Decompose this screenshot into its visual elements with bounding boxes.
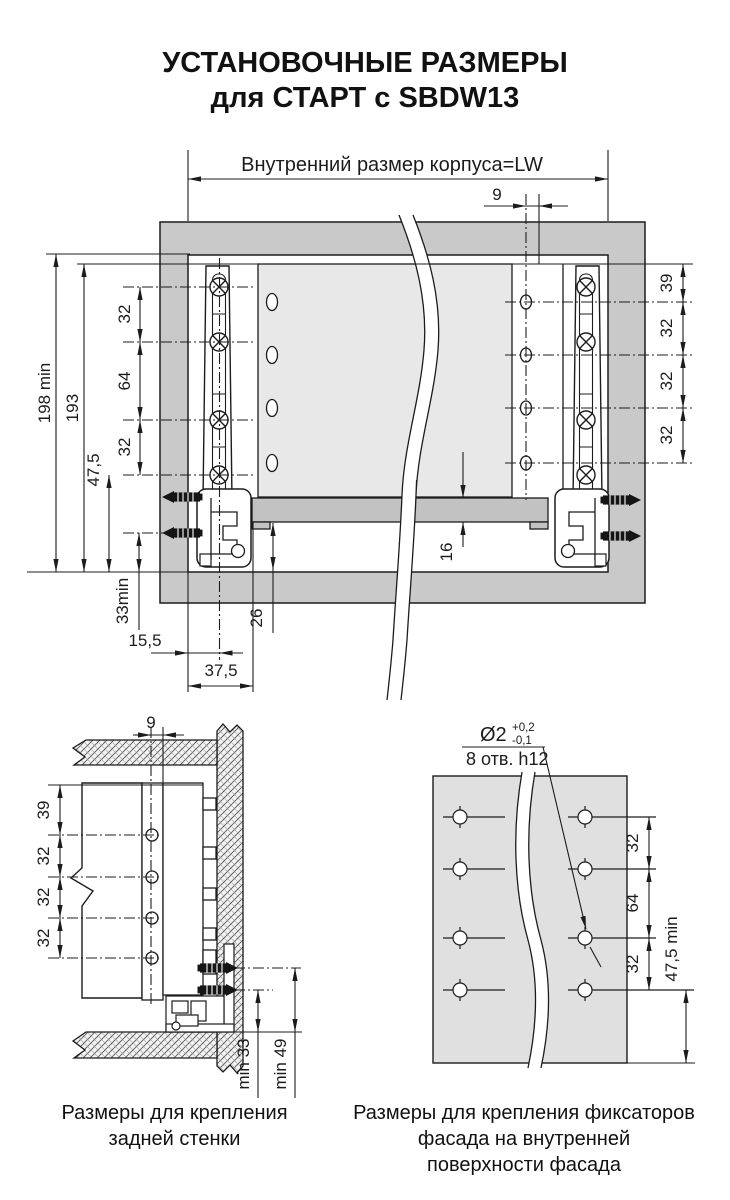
drawer-back-panel bbox=[258, 264, 512, 497]
facade-caption-line2: фасада на внутренней bbox=[330, 1126, 718, 1152]
dim-32-left-b: 32 bbox=[115, 438, 134, 457]
dim-offset-9-back: 9 bbox=[146, 713, 155, 732]
dim-15-5: 15,5 bbox=[128, 631, 161, 650]
back-wall-view: 9 39 32 32 32 min 33 min 49 bbox=[34, 713, 302, 1098]
back-wall-caption-line1: Размеры для крепления bbox=[22, 1100, 327, 1126]
phillips-screw-icon bbox=[577, 411, 595, 429]
dim-offset-9: 9 bbox=[492, 185, 501, 204]
dim-min33: min 33 bbox=[234, 1038, 253, 1089]
dim-37-5: 37,5 bbox=[204, 661, 237, 680]
dim-64-left: 64 bbox=[115, 372, 134, 391]
phillips-screw-icon bbox=[577, 278, 595, 296]
dim-32-back-b: 32 bbox=[34, 888, 53, 907]
page-title: УСТАНОВОЧНЫЕ РАЗМЕРЫ для СТАРТ с SBDW13 bbox=[0, 46, 730, 116]
dim-16: 16 bbox=[437, 543, 456, 562]
rail-hole-strip bbox=[142, 783, 163, 1000]
dim-39-right: 39 bbox=[657, 274, 676, 293]
rail-profile bbox=[163, 783, 216, 995]
drawer-back-wall bbox=[71, 783, 142, 998]
dim-39-back: 39 bbox=[34, 801, 53, 820]
dim-47-5: 47,5 bbox=[84, 453, 103, 486]
back-wall-caption: Размеры для крепления задней стенки bbox=[22, 1100, 327, 1152]
facade-dimensions bbox=[627, 817, 695, 1063]
left-rail bbox=[203, 266, 232, 500]
dim-26: 26 bbox=[247, 609, 266, 628]
page-title-line2: для СТАРТ с SBDW13 bbox=[0, 81, 730, 116]
dim-47-5-min: 47,5 min bbox=[662, 916, 681, 981]
lock-bracket-left bbox=[197, 489, 251, 567]
dim-32-back-a: 32 bbox=[34, 847, 53, 866]
cabinet-section-view: Внутренний размер корпуса=LW 9 198 min 1… bbox=[27, 150, 693, 700]
hole-diameter-label: Ø2 bbox=[480, 724, 507, 746]
cabinet-bottom-panel bbox=[73, 1032, 217, 1058]
page-title-line1: УСТАНОВОЧНЫЕ РАЗМЕРЫ bbox=[0, 46, 730, 81]
cabinet-top-panel bbox=[73, 740, 217, 765]
dim-33min: 33min bbox=[113, 578, 132, 624]
hole-tolerance-plus: +0,2 bbox=[512, 722, 535, 734]
facade-caption: Размеры для крепления фиксаторов фасада … bbox=[330, 1100, 718, 1178]
dim-32-left-a: 32 bbox=[115, 305, 134, 324]
dim-min49: min 49 bbox=[271, 1038, 290, 1089]
dim-32-back-c: 32 bbox=[34, 929, 53, 948]
back-wall-caption-line2: задней стенки bbox=[22, 1126, 327, 1152]
dim-32-right-c: 32 bbox=[657, 426, 676, 445]
dim-193: 193 bbox=[63, 394, 82, 422]
facade-caption-line3: поверхности фасада bbox=[330, 1152, 718, 1178]
dim-32-right-b: 32 bbox=[657, 372, 676, 391]
dim-64-facade: 64 bbox=[623, 894, 642, 913]
dim-32-facade-b: 32 bbox=[623, 955, 642, 974]
phillips-screw-icon bbox=[577, 466, 595, 484]
technical-drawing: Внутренний размер корпуса=LW 9 198 min 1… bbox=[0, 0, 730, 1200]
dim-32-facade-a: 32 bbox=[623, 834, 642, 853]
hole-tolerance-minus: -0,1 bbox=[512, 735, 532, 747]
holes-spec-label: 8 отв. h12 bbox=[466, 749, 548, 769]
drawing-page: Внутренний размер корпуса=LW 9 198 min 1… bbox=[0, 0, 730, 1200]
facade-view: Ø2 +0,2 -0,1 8 отв. h12 32 64 32 47,5 mi… bbox=[433, 722, 695, 1068]
right-rail bbox=[573, 266, 602, 500]
dim-cabinet-width: Внутренний размер корпуса=LW bbox=[241, 154, 543, 176]
facade-caption-line1: Размеры для крепления фиксаторов bbox=[330, 1100, 718, 1126]
dim-32-right-a: 32 bbox=[657, 319, 676, 338]
dim-198min: 198 min bbox=[35, 363, 54, 423]
phillips-screw-icon bbox=[577, 333, 595, 351]
